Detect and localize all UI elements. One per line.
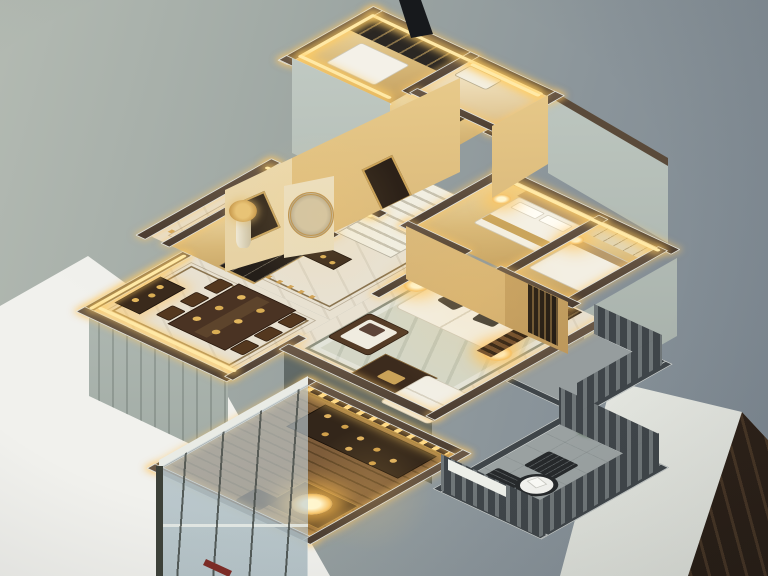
photo-of-architectural-model — [0, 0, 768, 576]
vignette — [0, 0, 768, 576]
